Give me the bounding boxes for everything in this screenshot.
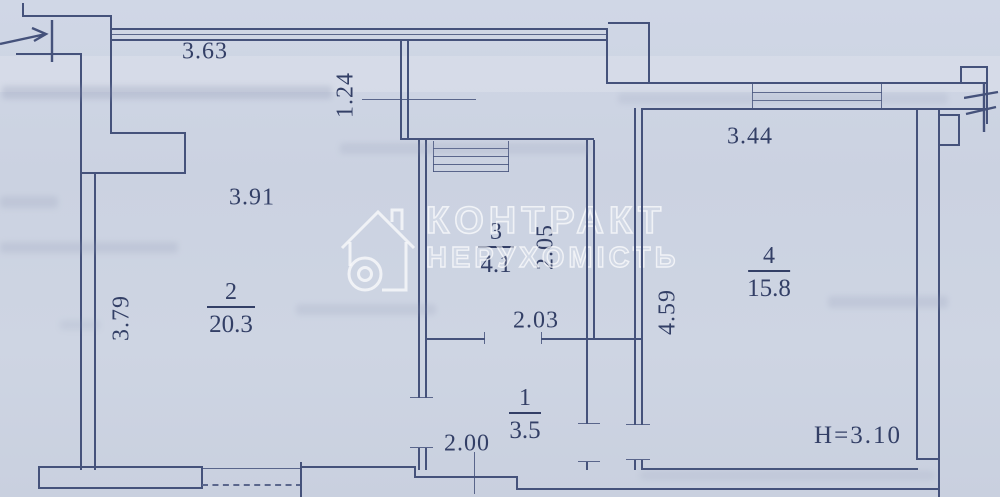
wall-segment xyxy=(606,28,608,84)
wall-segment xyxy=(425,140,427,398)
wall-segment xyxy=(916,458,940,460)
wall-segment xyxy=(578,423,600,424)
wall-segment xyxy=(110,39,608,41)
wall-segment xyxy=(415,476,518,478)
dimension-room1-width: 2.00 xyxy=(444,431,490,458)
wall-segment xyxy=(960,66,988,68)
wall-segment xyxy=(608,22,650,24)
wall-segment xyxy=(362,99,476,100)
wall-segment xyxy=(110,132,186,134)
wall-segment xyxy=(184,132,186,174)
wall-segment xyxy=(410,447,433,448)
room-label-4: 4 15.8 xyxy=(747,244,791,301)
scan-bleed-artifact xyxy=(640,471,935,480)
scan-bleed-artifact xyxy=(296,304,436,315)
room-number: 1 xyxy=(509,386,541,410)
wall-segment xyxy=(634,460,636,470)
wall-segment xyxy=(643,108,988,110)
wall-segment xyxy=(641,468,918,470)
dimension-room2-width: 3.91 xyxy=(229,185,275,212)
wall-segment xyxy=(986,68,988,124)
wall-segment xyxy=(541,338,641,340)
dimension-room2-depth: 3.79 xyxy=(109,295,136,341)
room-label-divider xyxy=(478,246,514,248)
wall-segment xyxy=(634,108,636,425)
wall-segment xyxy=(202,468,302,469)
scan-bleed-artifact xyxy=(340,143,590,154)
wall-segment xyxy=(414,466,416,478)
wall-segment xyxy=(38,466,202,468)
room-area: 3.5 xyxy=(509,418,541,443)
room-label-divider xyxy=(207,306,255,308)
wall-segment xyxy=(541,332,542,344)
dimension-room3-width: 2.03 xyxy=(513,308,559,335)
ceiling-height-label: H=3.10 xyxy=(814,422,902,450)
wall-segment xyxy=(38,487,202,489)
wall-segment xyxy=(425,338,485,340)
house-keyhole-icon xyxy=(336,202,420,298)
dimension-upper-partition: 1.24 xyxy=(333,72,360,118)
wall-segment xyxy=(608,82,988,84)
scan-bleed-artifact xyxy=(828,296,948,308)
wall-segment xyxy=(578,461,600,462)
room-label-divider xyxy=(509,412,541,414)
wall-segment xyxy=(425,448,427,470)
wall-segment xyxy=(960,66,962,84)
room-area: 15.8 xyxy=(747,276,791,301)
wall-segment xyxy=(586,462,588,470)
room-number: 2 xyxy=(207,280,255,304)
room-number: 4 xyxy=(747,244,791,268)
wall-segment xyxy=(16,53,82,55)
wall-segment xyxy=(916,108,918,460)
scan-bleed-artifact xyxy=(60,320,100,330)
wall-segment xyxy=(80,54,82,470)
room-label-1: 1 3.5 xyxy=(509,386,541,443)
wall-break-symbol-left xyxy=(0,16,78,64)
wall-segment xyxy=(516,476,518,490)
wall-segment xyxy=(433,171,509,172)
wall-segment xyxy=(38,466,40,489)
wall-segment xyxy=(433,164,509,165)
wall-segment xyxy=(433,156,509,157)
wall-segment xyxy=(516,488,940,490)
wall-segment xyxy=(586,140,588,424)
window-sill xyxy=(202,484,302,487)
room-label-3: 3 4.1 xyxy=(478,220,514,277)
wall-segment xyxy=(418,140,420,398)
wall-segment xyxy=(22,15,112,17)
dimension-room4-width: 3.44 xyxy=(727,124,773,151)
wall-segment xyxy=(400,39,402,140)
dimension-top-window: 3.63 xyxy=(182,39,228,66)
wall-segment xyxy=(112,34,606,35)
wall-segment xyxy=(962,108,988,110)
room-number: 3 xyxy=(478,220,514,244)
wall-segment xyxy=(474,452,475,494)
wall-segment xyxy=(410,397,433,398)
wall-segment xyxy=(484,332,485,344)
room-area: 20.3 xyxy=(207,312,255,337)
wall-segment xyxy=(82,172,186,174)
scan-bleed-artifact xyxy=(0,196,58,208)
room-area: 4.1 xyxy=(478,252,514,277)
wall-segment xyxy=(110,28,608,30)
dimension-room3-depth: 2.05 xyxy=(533,224,560,270)
room-label-2: 2 20.3 xyxy=(207,280,255,337)
wall-segment xyxy=(418,448,420,470)
scan-bleed-artifact xyxy=(618,93,948,104)
wall-segment xyxy=(648,22,650,84)
wall-segment xyxy=(626,424,650,425)
room-label-divider xyxy=(748,270,790,272)
wall-segment xyxy=(402,138,594,140)
scan-bleed-artifact xyxy=(0,242,178,253)
wall-segment xyxy=(407,39,409,140)
scan-bleed-artifact xyxy=(2,86,332,99)
wall-segment xyxy=(302,466,416,468)
dimension-room4-depth: 4.59 xyxy=(655,289,682,335)
duct-shaft xyxy=(938,114,960,146)
wall-segment xyxy=(626,459,650,460)
floor-plan: 3.63 1.24 3.91 3.79 2.03 2.05 3.44 4.59 … xyxy=(0,0,1000,497)
wall-segment xyxy=(593,140,595,340)
wall-segment xyxy=(641,108,643,425)
